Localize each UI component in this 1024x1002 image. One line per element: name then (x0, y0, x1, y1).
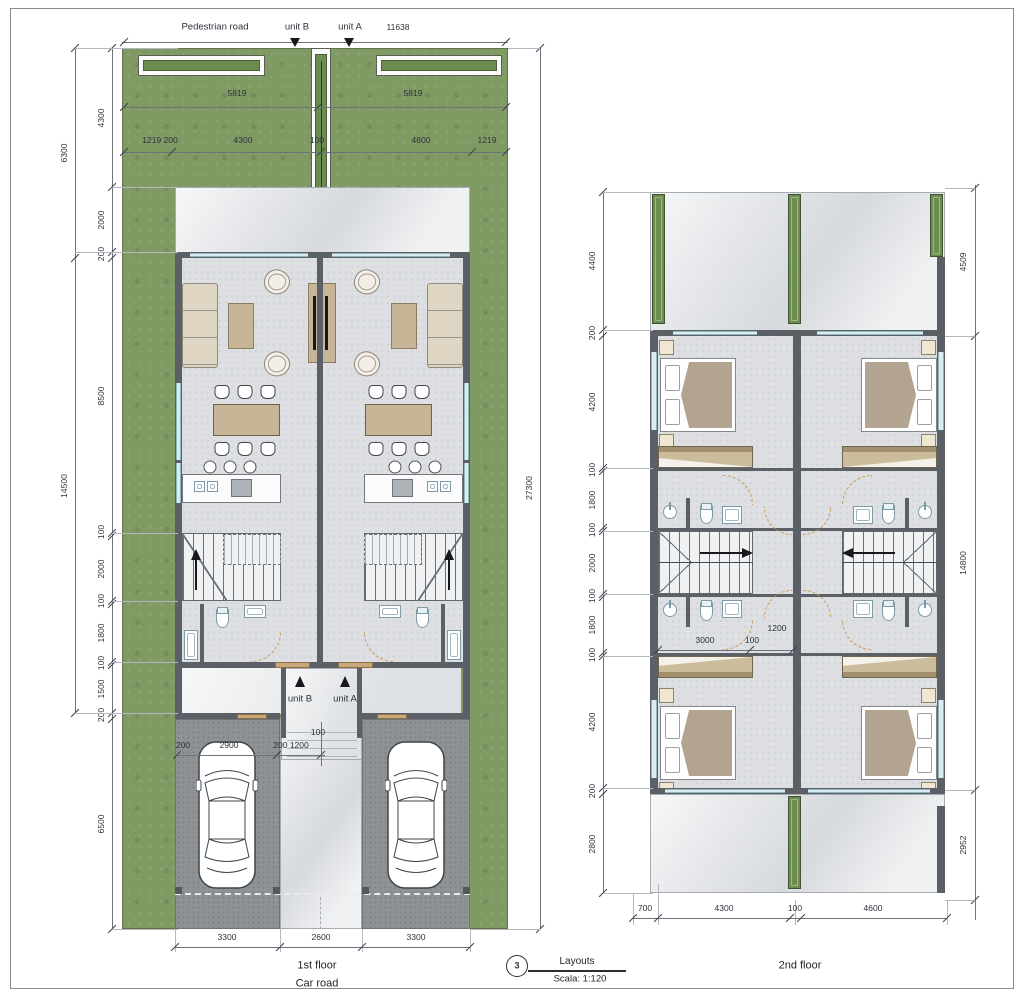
dim: 200 (588, 784, 597, 798)
stair-diagonal (903, 531, 937, 563)
ext-line (603, 531, 653, 532)
dining-chair (261, 385, 276, 399)
dim: 1800 (97, 624, 106, 643)
dim: 1219 (478, 136, 497, 145)
ext-line (470, 929, 471, 952)
dim: 2000 (588, 554, 597, 573)
ext-line (603, 192, 653, 193)
dim-line (75, 48, 76, 713)
floor-label-2nd: 2nd floor (779, 961, 822, 972)
kitchen-sink (440, 481, 451, 492)
dim-line (175, 947, 470, 948)
utility-closet (447, 630, 461, 660)
coffee-table (228, 303, 254, 349)
car-top-view (196, 740, 258, 890)
stair-diagonal (658, 562, 692, 594)
dining-chair (369, 442, 384, 456)
ext-line (945, 336, 975, 337)
window (938, 700, 944, 778)
ext-line (362, 929, 363, 952)
dim: 100 (97, 594, 106, 608)
kitchen-sink (207, 481, 218, 492)
dim-line (122, 152, 508, 153)
dim-line (540, 48, 541, 929)
ext-line (945, 790, 975, 791)
window (332, 253, 450, 257)
dim: 4300 (234, 136, 253, 145)
dim: 200 (97, 247, 106, 261)
ext-line (75, 713, 178, 714)
ext-line (603, 788, 653, 789)
entry-wall (182, 662, 275, 668)
dim: 4600 (412, 136, 431, 145)
dim: 200 1200 (273, 741, 308, 750)
dim: 1200 (768, 624, 787, 633)
blanket (865, 710, 916, 776)
dining-chair (261, 442, 276, 456)
bath-partition (686, 498, 690, 528)
stair-diagonal (658, 531, 692, 563)
dim: 1500 (97, 680, 106, 699)
bath-sink (244, 605, 266, 618)
blanket (865, 362, 916, 428)
stair-arrow-stem (700, 552, 744, 554)
sheet-number: 3 (514, 962, 519, 971)
toilet (882, 600, 895, 621)
dim: 8500 (97, 387, 106, 406)
pillow (917, 399, 933, 426)
dim: 1800 (588, 616, 597, 635)
shower (663, 505, 677, 519)
bath-partition (905, 597, 909, 627)
dim: 3000 (696, 636, 715, 645)
dining-chair (415, 442, 430, 456)
terrace-wall (937, 257, 945, 336)
entry-label-unit-b: unit B (288, 694, 312, 704)
stair-arrow (842, 548, 853, 558)
bath-wall (801, 468, 937, 471)
car-top-view (385, 740, 447, 890)
dining-chair (415, 385, 430, 399)
porch-wall (357, 668, 362, 738)
tv-screen (325, 296, 328, 350)
dining-chair (369, 385, 384, 399)
dim: 4600 (864, 904, 883, 913)
carport-dashed-line (175, 893, 470, 895)
nightstand (659, 688, 674, 703)
carport-post (362, 887, 369, 894)
dim: 4200 (588, 393, 597, 412)
pillow (665, 365, 681, 392)
yard-gate (237, 714, 267, 719)
carport-post (273, 887, 280, 894)
ext-line (175, 929, 176, 952)
stair-divider (842, 562, 937, 563)
ext-line (112, 662, 178, 663)
bath-sink (853, 600, 873, 618)
ext-line (112, 929, 178, 930)
dining-chair (392, 442, 407, 456)
dining-table (213, 404, 280, 436)
ext-line (112, 187, 178, 188)
dim-total-height: 27300 (525, 476, 534, 500)
window (464, 383, 469, 460)
dim: 100 (310, 136, 324, 145)
nightstand (659, 340, 674, 355)
entry-arrow-unit-b (295, 676, 305, 687)
unit-b-label: unit B (285, 22, 309, 32)
ext-line (603, 330, 653, 331)
hedge-planter-left (138, 55, 265, 76)
cooktop (231, 479, 252, 497)
window (651, 352, 657, 430)
ext-line (280, 929, 281, 952)
terrace-planter (788, 194, 801, 324)
bath-partition (686, 597, 690, 627)
nightstand (921, 688, 936, 703)
dim: 100 (788, 904, 802, 913)
dim: 100 (97, 525, 106, 539)
dim-line (975, 185, 976, 920)
bath-sink (853, 506, 873, 524)
stair-arrow-stem (448, 560, 450, 590)
gate-marker-unit-a (344, 38, 354, 47)
utility-closet (184, 630, 198, 660)
dining-table (365, 404, 432, 436)
stair-storage (223, 534, 281, 565)
dining-chair (215, 385, 230, 399)
nightstand (921, 340, 936, 355)
bar-stool (389, 461, 402, 474)
dining-chair (238, 442, 253, 456)
dim: 700 (638, 904, 652, 913)
ext-line (112, 533, 178, 534)
ext-line (633, 893, 634, 925)
porch-wall (281, 668, 286, 738)
carport-post (175, 887, 182, 894)
blanket (681, 362, 732, 428)
bath-wall (658, 653, 793, 656)
sofa (182, 283, 218, 368)
dim: 14800 (959, 551, 968, 575)
dining-chair (215, 442, 230, 456)
dim: 2000 (97, 211, 106, 230)
dim: 100 (745, 636, 759, 645)
dim: 6300 (60, 144, 69, 163)
dim-line (122, 42, 508, 43)
pillow (917, 747, 933, 774)
bath-sink (722, 506, 742, 524)
dim: 14500 (60, 474, 69, 498)
sheet-border-bottom (10, 988, 1014, 989)
ext-line (112, 601, 178, 602)
window (176, 463, 181, 503)
shower (663, 603, 677, 617)
toilet (216, 607, 229, 628)
toilet (416, 607, 429, 628)
ext-line (75, 48, 178, 49)
bath-wall (200, 604, 204, 662)
toilet (882, 503, 895, 524)
kitchen-sink (194, 481, 205, 492)
front-terrace (175, 187, 470, 253)
terrace-planter (930, 194, 943, 257)
bath-sink (722, 600, 742, 618)
pillow (917, 713, 933, 740)
carport-post (463, 887, 470, 894)
window (673, 331, 757, 335)
bath-wall (441, 604, 445, 662)
pillow (917, 365, 933, 392)
window (190, 253, 308, 257)
window (464, 463, 469, 503)
entry-arrow-unit-a (340, 676, 350, 687)
pillow (665, 399, 681, 426)
pedestrian-road-label: Pedestrian road (181, 22, 248, 32)
hedge-green (381, 60, 497, 71)
dim: 200 (588, 326, 597, 340)
dim-entry-gap: 100 (311, 728, 325, 737)
dim: 200 (97, 708, 106, 722)
stair-arrow-stem (851, 552, 895, 554)
window (808, 789, 930, 793)
ext-line (603, 893, 653, 894)
sheet-border-left (10, 8, 11, 989)
unit-a-label: unit A (338, 22, 362, 32)
ext-line (945, 188, 975, 189)
dim: 100 (588, 523, 597, 537)
double-bed (660, 358, 736, 432)
ext-line (508, 48, 540, 49)
dim: 6500 (97, 815, 106, 834)
bath-sink (379, 605, 401, 618)
driveway-dashed-line (320, 897, 321, 929)
bar-stool (409, 461, 422, 474)
dim-garden-right: 5819 (404, 89, 423, 98)
ext-line (470, 929, 540, 930)
window (665, 789, 785, 793)
dim-garden-left: 5819 (228, 89, 247, 98)
stair-arrow (742, 548, 753, 558)
dim-line (112, 48, 113, 929)
hedge-green (143, 60, 260, 71)
dim: 4509 (959, 253, 968, 272)
coffee-table (391, 303, 417, 349)
terrace-planter (652, 194, 665, 324)
stair-up-arrow (444, 549, 454, 560)
wardrobe (658, 656, 753, 678)
yard-gate (377, 714, 407, 719)
dim-line (175, 755, 325, 756)
terrace-planter (788, 796, 801, 889)
bar-stool (224, 461, 237, 474)
dim: 2900 (220, 741, 239, 750)
dim: 2952 (959, 836, 968, 855)
dim: 4200 (588, 713, 597, 732)
title-underline (528, 970, 626, 972)
ext-line (603, 468, 653, 469)
bar-stool (204, 461, 217, 474)
dining-chair (392, 385, 407, 399)
ext-line (75, 252, 178, 253)
party-wall (317, 252, 323, 668)
toilet (700, 503, 713, 524)
dining-chair (238, 385, 253, 399)
stair-diagonal (182, 533, 227, 601)
sofa (427, 283, 463, 368)
bath-wall (658, 468, 793, 471)
wardrobe (658, 446, 753, 468)
stair-up-arrow (191, 549, 201, 560)
stair-divider (658, 562, 753, 563)
stair-arrow-stem (195, 560, 197, 590)
dim: 3300 (218, 933, 237, 942)
drawing-sheet: unit B unit A Pedestrian road unit B uni… (0, 0, 1024, 1002)
wardrobe (842, 656, 937, 678)
dim: 100 (588, 648, 597, 662)
ext-line (947, 900, 948, 925)
shower (918, 603, 932, 617)
bar-stool (429, 461, 442, 474)
window (651, 700, 657, 778)
window (938, 352, 944, 430)
dim: 4300 (715, 904, 734, 913)
dim: 1800 (588, 491, 597, 510)
tv-screen (313, 296, 316, 350)
sheet-border-right (1013, 8, 1014, 989)
party-wall-2nd (793, 336, 801, 794)
ext-line (603, 594, 653, 595)
gate-marker-unit-b (290, 38, 300, 47)
dim: 4400 (588, 252, 597, 271)
blanket (681, 710, 732, 776)
entry-label-unit-a: unit A (333, 694, 357, 704)
porch-step (287, 756, 357, 757)
dim-total-width: 11638 (386, 23, 409, 32)
dim: 1219 200 (142, 136, 177, 145)
stair-diagonal (418, 533, 463, 601)
dim: 2000 (97, 560, 106, 579)
dim: 2600 (312, 933, 331, 942)
pillow (665, 747, 681, 774)
bath-wall (801, 653, 937, 656)
double-bed (861, 706, 937, 780)
dim: 2800 (588, 835, 597, 854)
car-road-label: Car road (296, 979, 339, 990)
floor-label-1st: 1st floor (297, 961, 336, 972)
dim: 100 (588, 589, 597, 603)
pillow (665, 713, 681, 740)
dim-line (658, 650, 793, 651)
hedge-planter-right (376, 55, 502, 76)
window (817, 331, 923, 335)
window (176, 383, 181, 460)
entry-wall (373, 662, 463, 668)
kitchen-sink (427, 481, 438, 492)
dim: 200 (176, 741, 190, 750)
stair-storage (364, 534, 422, 565)
bar-stool (244, 461, 257, 474)
sheet-title: Layouts (559, 957, 594, 967)
bath-partition (905, 498, 909, 528)
stair-diagonal (903, 562, 937, 594)
double-bed (660, 706, 736, 780)
wardrobe (842, 446, 937, 468)
dim: 3300 (407, 933, 426, 942)
terrace-wall (937, 806, 945, 893)
cooktop (392, 479, 413, 497)
shower (918, 505, 932, 519)
ext-line (603, 656, 653, 657)
toilet (700, 600, 713, 621)
dim: 4300 (97, 109, 106, 128)
dim: 100 (588, 463, 597, 477)
sheet-border-top (10, 8, 1014, 9)
dim: 100 (97, 656, 106, 670)
ext-line (945, 900, 975, 901)
double-bed (861, 358, 937, 432)
sheet-scale: Scala: 1:120 (554, 974, 607, 984)
